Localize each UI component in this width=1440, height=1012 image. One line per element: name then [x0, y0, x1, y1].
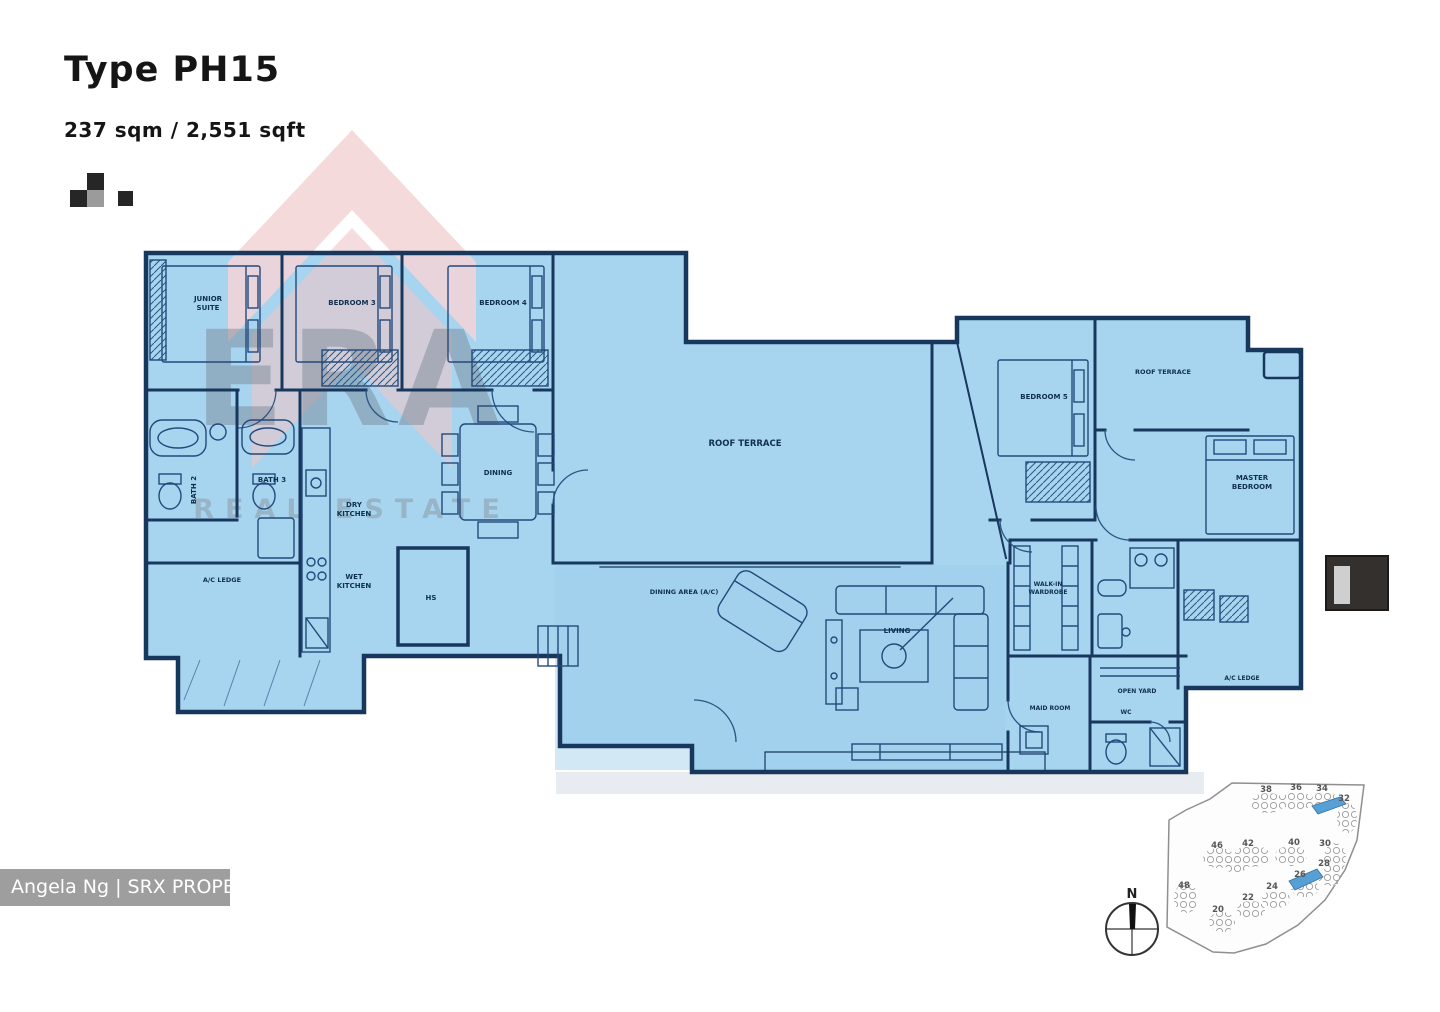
floorplan-canvas: ERA REAL ESTATE: [0, 0, 1440, 1012]
block-28: 28: [1318, 859, 1330, 869]
label-maid-room: MAID ROOM: [1030, 705, 1071, 712]
label-open-yard: OPEN YARD: [1118, 688, 1157, 695]
wardrobe-bedroom4: [472, 350, 548, 386]
block-22: 22: [1242, 893, 1254, 903]
compass-icon: N: [1106, 887, 1158, 955]
floorplan-page: Type PH15 237 sqm / 2,551 sqft: [0, 0, 1440, 1012]
block-42: 42: [1242, 839, 1254, 849]
label-master-bedroom: MASTER: [1236, 474, 1269, 482]
block-48: 48: [1178, 881, 1190, 891]
label-ac-ledge-left: A/C LEDGE: [203, 576, 241, 584]
unit-locator-icon: [70, 173, 133, 207]
flue-box: [1264, 352, 1300, 378]
label-hs: HS: [426, 594, 437, 602]
svg-text:WARDROBE: WARDROBE: [1029, 589, 1068, 596]
block-46: 46: [1211, 841, 1223, 851]
label-wet-kitchen: WET: [345, 573, 363, 581]
agent-watermark: Angela Ng | SRX PROPERTY: [0, 869, 230, 906]
block-40: 40: [1288, 838, 1300, 848]
label-bath3: BATH 3: [258, 476, 286, 484]
label-dry-kitchen: DRY: [346, 501, 363, 509]
block-38: 38: [1260, 785, 1272, 795]
site-plan: 38 36 34 32 46 42 40 30 48 28 26 24 22 2…: [1167, 783, 1364, 953]
block-24: 24: [1266, 882, 1278, 892]
wardrobe-bedroom3: [322, 350, 398, 386]
private-lift-icon: [1326, 556, 1388, 610]
svg-text:KITCHEN: KITCHEN: [337, 510, 372, 518]
block-32: 32: [1338, 794, 1350, 804]
label-ac-ledge-right: A/C LEDGE: [1224, 675, 1259, 682]
agent-watermark-text: Angela Ng | SRX PROPERTY: [11, 876, 270, 898]
label-walkin-wardrobe: WALK-IN: [1034, 581, 1063, 588]
svg-text:KITCHEN: KITCHEN: [337, 582, 372, 590]
wardrobe-bedroom5: [1026, 462, 1090, 502]
label-roof-terrace-main: ROOF TERRACE: [708, 439, 781, 449]
block-34: 34: [1316, 784, 1328, 794]
label-dining-area: DINING AREA (A/C): [650, 588, 719, 596]
label-bath2: BATH 2: [190, 476, 198, 504]
block-36: 36: [1290, 783, 1302, 793]
label-bedroom4: BEDROOM 4: [479, 299, 527, 307]
label-wc: WC: [1120, 709, 1132, 716]
label-dining: DINING: [484, 469, 513, 477]
label-living: LIVING: [884, 627, 911, 635]
label-bedroom3: BEDROOM 3: [328, 299, 376, 307]
block-20: 20: [1212, 905, 1224, 915]
label-bedroom5: BEDROOM 5: [1020, 393, 1068, 401]
svg-text:SUITE: SUITE: [197, 304, 220, 312]
block-26: 26: [1294, 870, 1306, 880]
compass-north-label: N: [1127, 887, 1138, 902]
svg-text:BEDROOM: BEDROOM: [1232, 483, 1272, 491]
label-roof-terrace-right: ROOF TERRACE: [1135, 368, 1191, 376]
label-junior-suite: JUNIOR: [193, 295, 223, 303]
block-30: 30: [1319, 839, 1331, 849]
wardrobe-junior-suite: [150, 260, 166, 360]
